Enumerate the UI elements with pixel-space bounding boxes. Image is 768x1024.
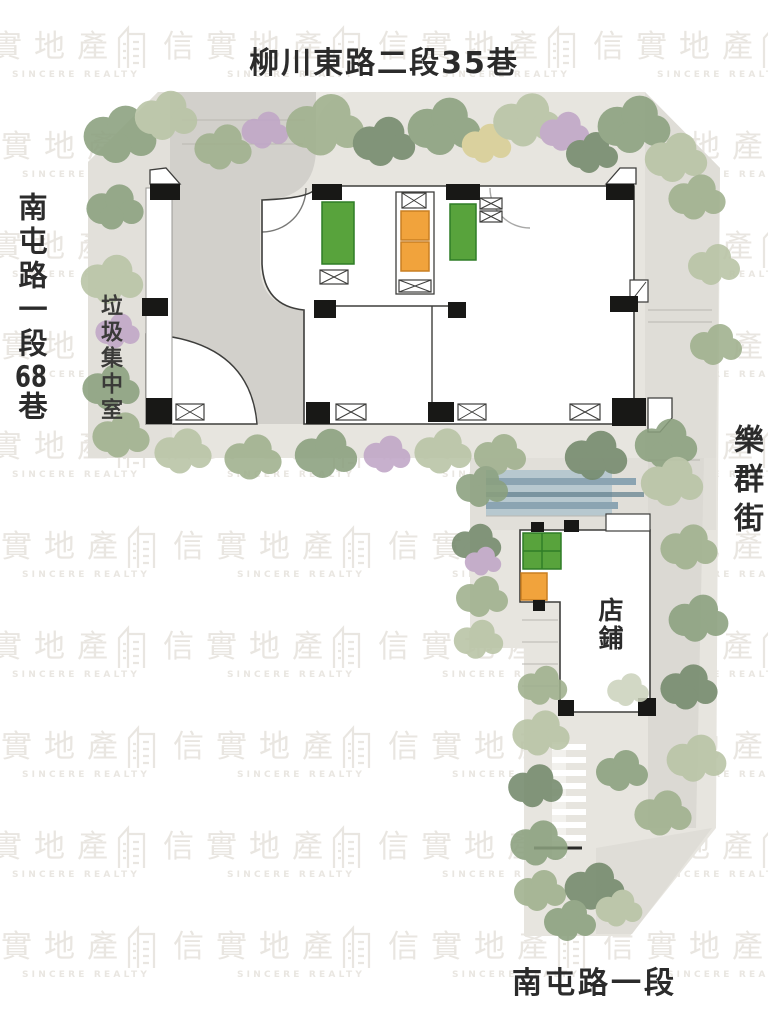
street-label-left-prefix: 南屯路一段 — [14, 192, 48, 362]
garbage-room-label: 垃圾集中室 — [93, 294, 125, 424]
street-label-left: 南屯路一段68巷 — [10, 192, 52, 425]
street-label-left-suffix: 巷 — [14, 391, 48, 425]
street-label-right: 樂群街 — [723, 424, 767, 541]
elevator-core — [396, 192, 434, 294]
site-plan-drawing — [0, 0, 768, 1024]
street-label-left-number: 68 — [14, 362, 48, 391]
elevator-cab — [401, 242, 429, 271]
shop-label: 店鋪 — [591, 597, 627, 653]
shop-elevator — [521, 573, 547, 600]
street-label-bottom: 南屯路一段 — [512, 958, 677, 1002]
elevator-cab — [401, 211, 429, 240]
site-plan-page: { "page": {"width": 768, "height": 1024,… — [0, 0, 768, 1024]
shop-planter — [523, 533, 561, 569]
street-label-top: 柳川東路二段35巷 — [0, 38, 768, 82]
